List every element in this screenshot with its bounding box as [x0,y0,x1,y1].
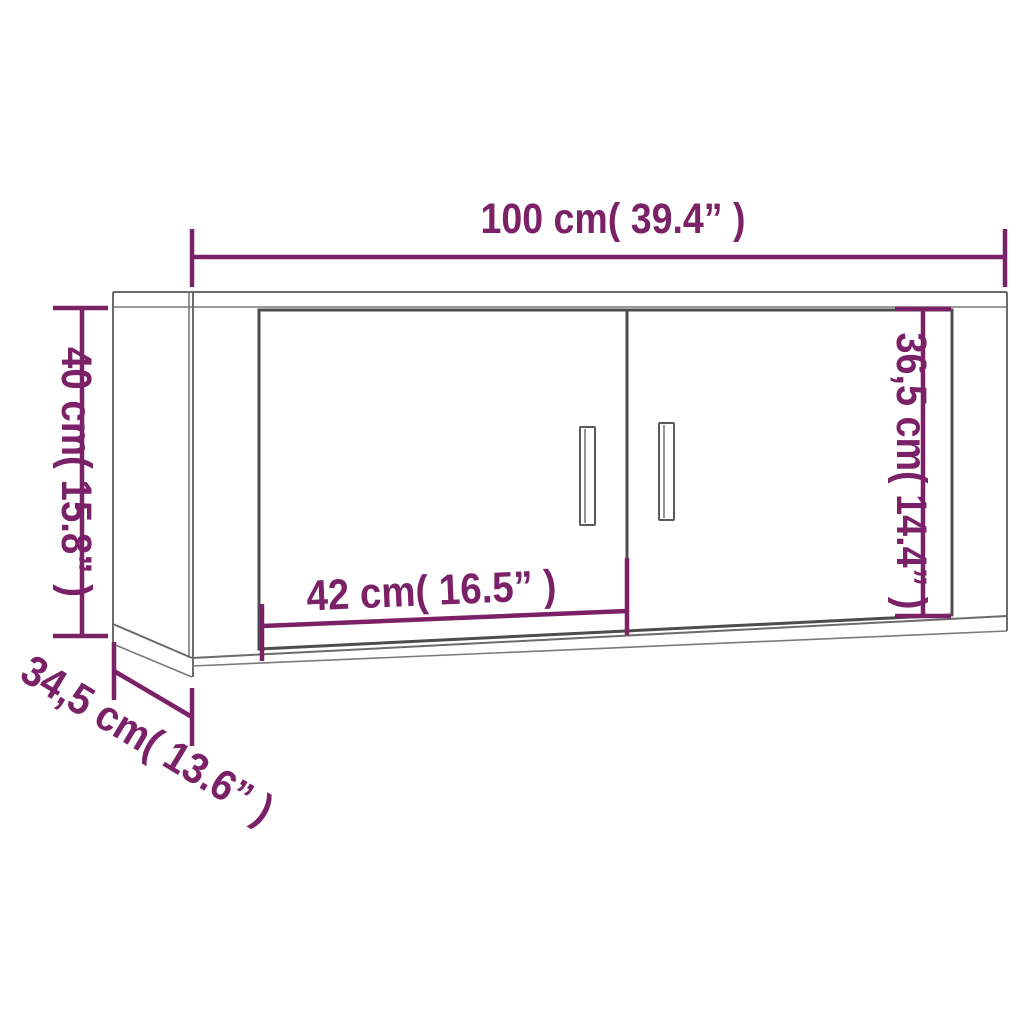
height-dimension-label: 40 cm( 15.8” ) [52,347,100,597]
left-door-handle [580,427,595,525]
door-height-dimension-label: 36,5 cm( 14.4” ) [887,333,935,610]
product-dimension-diagram: 100 cm( 39.4” ) 40 cm( 15.8” ) 34,5 cm( … [0,0,1024,1024]
dimension-overall-width: 100 cm( 39.4” ) [192,195,1005,287]
dimension-overall-height: 40 cm( 15.8” ) [52,308,108,636]
dimension-door-height: 36,5 cm( 14.4” ) [887,309,951,616]
right-door-handle [659,423,674,520]
dimension-overall-depth: 34,5 cm( 13.6” ) [13,642,282,834]
depth-dimension-label: 34,5 cm( 13.6” ) [13,646,282,834]
width-dimension-label: 100 cm( 39.4” ) [481,195,746,243]
door-width-dimension-label: 42 cm( 16.5” ) [305,562,557,621]
cabinet-side-bottom-band-edge [113,644,192,677]
diagram-canvas: 100 cm( 39.4” ) 40 cm( 15.8” ) 34,5 cm( … [0,0,1024,1024]
cabinet-drawing [113,292,1007,677]
cabinet-side-bottom-edge [113,624,192,658]
